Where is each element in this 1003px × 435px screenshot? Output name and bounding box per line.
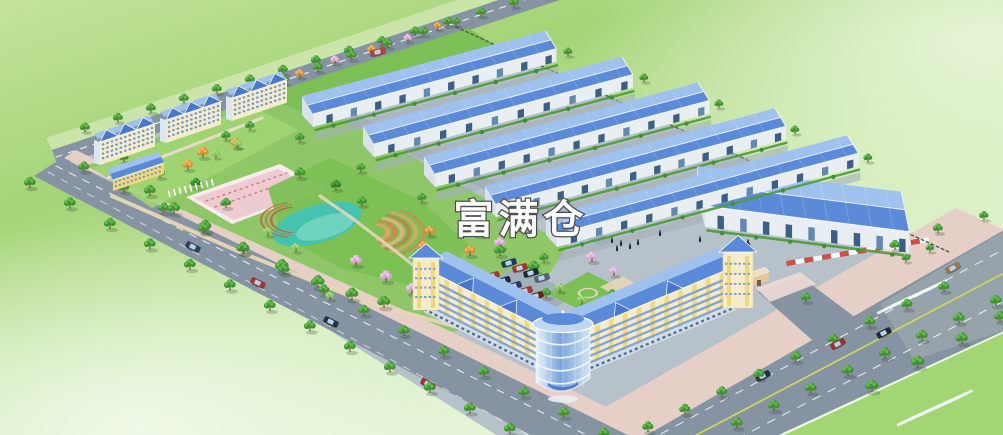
tree-shadow [480, 376, 491, 380]
loading-door [630, 171, 636, 181]
person-head [629, 243, 631, 245]
tree-canopy-highlight [441, 346, 444, 349]
tree-canopy-highlight [589, 251, 592, 254]
tree-canopy-highlight [805, 385, 808, 388]
loading-door [786, 224, 792, 238]
tree-canopy-highlight [380, 273, 384, 277]
tree-shadow [247, 129, 257, 133]
loading-door [740, 218, 746, 232]
tree-shadow [293, 251, 303, 255]
tree-canopy-highlight [359, 196, 362, 199]
tree-shadow [644, 431, 655, 435]
tree-canopy-highlight [519, 389, 522, 392]
loading-door [797, 173, 803, 183]
person-body [616, 247, 618, 252]
tree-shadow [541, 261, 551, 265]
loading-door [772, 180, 778, 190]
tree-shadow [146, 248, 158, 252]
tree-canopy-highlight [918, 359, 922, 363]
tree-shadow [560, 417, 571, 421]
loading-door [440, 130, 446, 140]
tree-canopy-highlight [188, 162, 191, 165]
tree-canopy-highlight [148, 103, 151, 106]
tree-shadow [185, 169, 196, 173]
tree-canopy-highlight [404, 36, 406, 38]
tree-shadow [844, 375, 856, 379]
loading-door [518, 109, 524, 119]
person-body [659, 232, 661, 237]
tree-canopy-highlight [868, 155, 870, 157]
tree-shadow [385, 47, 395, 51]
loading-door [678, 158, 684, 168]
tree-canopy-highlight [204, 225, 207, 228]
tree-canopy-highlight [267, 300, 271, 304]
tree-canopy-highlight [81, 161, 84, 164]
tree-canopy-highlight [476, 9, 479, 12]
tree-canopy-highlight [234, 142, 236, 144]
tree-canopy-highlight [300, 71, 303, 74]
tree-canopy-highlight [356, 165, 359, 168]
office-tower [409, 244, 443, 310]
tree-canopy-highlight [494, 248, 497, 251]
tree-shadow [297, 141, 307, 145]
loading-door [474, 167, 480, 177]
tree-shadow [866, 326, 877, 330]
tree-shadow [958, 343, 971, 348]
tree-canopy-highlight [231, 140, 234, 143]
loading-door [698, 107, 704, 117]
tree-canopy-highlight [791, 354, 794, 357]
tree-canopy-highlight [184, 262, 187, 265]
loading-door [375, 101, 381, 111]
tree-canopy-highlight [349, 288, 353, 292]
tree-canopy-highlight [790, 127, 793, 130]
tree-canopy-highlight [212, 152, 214, 154]
tree-canopy-highlight [801, 295, 804, 298]
tree-canopy-highlight [197, 150, 200, 153]
tree-shadow [66, 207, 78, 211]
end-wall [94, 140, 100, 165]
tree-canopy-highlight [639, 75, 642, 78]
tree-shadow [419, 201, 429, 205]
bush [720, 231, 724, 235]
tree-canopy-highlight [962, 335, 965, 338]
tree-canopy-highlight [644, 75, 646, 77]
tree-shadow [981, 219, 991, 223]
tree-canopy-highlight [212, 86, 215, 89]
tree-canopy-highlight [313, 65, 316, 68]
bush [480, 130, 484, 134]
tree-canopy-highlight [811, 385, 814, 388]
tree-shadow [642, 81, 651, 84]
tree-canopy-highlight [30, 179, 33, 182]
tree-canopy-highlight [298, 133, 301, 136]
tree-canopy-highlight [223, 198, 226, 201]
tree-canopy-highlight [279, 266, 282, 269]
tree-canopy-highlight [879, 350, 882, 353]
tree-canopy-highlight [421, 241, 425, 245]
tree-canopy-highlight [944, 284, 947, 287]
tree-canopy-highlight [104, 221, 107, 224]
tree-canopy-highlight [418, 244, 421, 247]
person [699, 236, 701, 242]
tree-canopy-highlight [806, 295, 809, 298]
tree-canopy-highlight [916, 333, 919, 336]
tree-canopy-highlight [895, 242, 898, 245]
tree-canopy-highlight [734, 417, 738, 421]
tree-canopy-highlight [113, 115, 116, 118]
gatehouse-door [757, 280, 761, 286]
tree-canopy-highlight [484, 369, 487, 372]
bush [523, 118, 527, 122]
tree-canopy-highlight [247, 74, 250, 77]
tree-canopy-highlight [146, 105, 149, 108]
tree-canopy-highlight [448, 19, 451, 22]
bush [453, 91, 457, 95]
tree-canopy-highlight [470, 248, 473, 251]
loading-door [854, 233, 860, 247]
tree-canopy-highlight [24, 180, 27, 183]
tree-canopy-highlight [335, 57, 337, 59]
loading-door [499, 160, 505, 170]
tree-canopy-highlight [580, 295, 583, 298]
tree-shadow [82, 131, 92, 135]
tree-canopy-highlight [344, 48, 347, 51]
tree-canopy-highlight [315, 276, 319, 280]
tree-canopy-highlight [456, 19, 458, 21]
tree-canopy-highlight [315, 62, 318, 65]
loading-door [399, 94, 405, 104]
tree-canopy-highlight [609, 269, 612, 272]
tree-shadow [792, 361, 803, 365]
tree-canopy-highlight [110, 220, 113, 223]
tree-canopy-highlight [481, 9, 484, 12]
loading-door [831, 230, 837, 244]
end-wall [160, 118, 166, 143]
tree-canopy-highlight [803, 292, 806, 295]
tree-shadow [266, 310, 278, 314]
tree-canopy-highlight [444, 348, 447, 351]
tree-canopy-highlight [717, 99, 720, 102]
tree-shadow [315, 71, 325, 75]
loading-door [466, 123, 472, 133]
tree-canopy-highlight [933, 226, 936, 229]
tree-shadow [333, 63, 342, 66]
tree-canopy-highlight [250, 77, 253, 80]
tree-canopy-highlight [304, 323, 307, 326]
loading-door [544, 102, 550, 112]
tree-canopy-highlight [555, 285, 558, 288]
tree-canopy-highlight [359, 307, 362, 310]
tree-shadow [199, 157, 211, 161]
tree-canopy-highlight [865, 319, 868, 322]
tree-canopy-highlight [361, 305, 364, 308]
tree-canopy-highlight [245, 123, 248, 126]
bush [437, 141, 441, 145]
tree-canopy-highlight [737, 420, 740, 423]
tree-canopy-highlight [645, 421, 648, 424]
tree-canopy-highlight [774, 402, 777, 405]
tree-canopy-highlight [294, 243, 297, 246]
bush [547, 158, 551, 162]
bush [630, 229, 634, 233]
tree-canopy-highlight [353, 255, 357, 259]
tree-shadow [445, 26, 455, 30]
person [616, 245, 618, 251]
tree-canopy-highlight [250, 123, 253, 126]
tree-shadow [918, 340, 930, 344]
tree-canopy-highlight [922, 332, 925, 335]
loading-door [388, 143, 394, 153]
tree-canopy-highlight [796, 354, 799, 357]
bush [663, 173, 667, 177]
tree-canopy-highlight [425, 228, 428, 231]
tree-canopy-highlight [959, 332, 963, 336]
tree-canopy-highlight [568, 49, 570, 51]
tree-canopy-highlight [361, 165, 364, 168]
bush [890, 252, 894, 256]
bush [781, 188, 785, 192]
tree-canopy-highlight [227, 279, 231, 283]
tree-shadow [346, 351, 358, 355]
tree-canopy-highlight [544, 255, 547, 258]
tree-canopy-highlight [438, 24, 440, 26]
bush [759, 148, 763, 152]
tree-canopy-highlight [439, 348, 442, 351]
tree-canopy-highlight [867, 316, 870, 319]
tree-canopy-highlight [409, 283, 413, 287]
tree-canopy-highlight [399, 328, 402, 331]
tree-canopy-highlight [324, 287, 327, 290]
tree-shadow [496, 255, 508, 259]
tree-canopy-highlight [481, 366, 484, 369]
tree-canopy-highlight [67, 197, 71, 201]
tree-shadow [466, 255, 477, 259]
tree-canopy-highlight [430, 384, 433, 387]
tree-canopy-highlight [424, 385, 427, 388]
tree-canopy-highlight [325, 293, 328, 296]
tree-shadow [238, 253, 251, 258]
tree-canopy-highlight [238, 142, 240, 144]
loading-door [545, 55, 551, 65]
tree-canopy-highlight [381, 296, 385, 300]
tree-canopy-highlight [226, 200, 229, 203]
tree-canopy-highlight [648, 424, 651, 427]
person-body [699, 238, 701, 243]
tree-shadow [148, 112, 158, 116]
tree-canopy-highlight [347, 341, 351, 345]
tree-shadow [904, 261, 912, 264]
tree-canopy-highlight [768, 403, 771, 406]
tree-shadow [186, 269, 198, 273]
tree-canopy-highlight [892, 240, 895, 243]
tree-shadow [412, 35, 422, 39]
tree-canopy-highlight [70, 200, 73, 203]
bush [393, 153, 397, 157]
tree-shadow [280, 273, 291, 277]
tree-shadow [157, 177, 168, 181]
tree-shadow [928, 251, 936, 254]
tree-canopy-highlight [311, 57, 314, 60]
tree-canopy-highlight [268, 229, 271, 232]
tree-shadow [681, 413, 692, 417]
tree-canopy-highlight [795, 127, 797, 129]
tree-canopy-highlight [993, 295, 997, 299]
tree-canopy-highlight [524, 389, 527, 392]
bush [680, 215, 684, 219]
tree-canopy-highlight [419, 29, 422, 32]
tree-canopy-highlight [390, 364, 393, 367]
tree-canopy-highlight [336, 182, 339, 185]
tree-canopy-highlight [406, 34, 409, 37]
loading-door [751, 139, 757, 149]
tree-shadow [200, 232, 211, 236]
tree-shadow [755, 378, 766, 382]
loading-door [326, 114, 332, 124]
tree-canopy-highlight [226, 133, 229, 136]
tree-canopy-highlight [187, 259, 191, 263]
tree-shadow [421, 35, 431, 39]
tree-canopy-highlight [185, 160, 188, 163]
tree-canopy-highlight [719, 101, 721, 103]
tree-canopy-highlight [321, 284, 324, 287]
tree-canopy-highlight [845, 365, 849, 369]
bush [456, 183, 460, 187]
tree-canopy-highlight [385, 38, 388, 41]
tree-canopy-highlight [902, 256, 904, 258]
tree-canopy-highlight [604, 430, 607, 433]
bush [609, 95, 613, 99]
tree-canopy-highlight [872, 383, 876, 387]
loading-door [747, 186, 753, 196]
tree-canopy-highlight [370, 45, 373, 48]
tree-canopy-highlight [313, 55, 316, 58]
tree-canopy-highlight [183, 162, 186, 165]
tree-canopy-highlight [510, 425, 513, 428]
tree-canopy-highlight [318, 278, 322, 282]
person-head [611, 237, 613, 239]
tree-canopy-highlight [563, 49, 566, 52]
tree-canopy-highlight [367, 47, 370, 50]
tree-canopy-highlight [217, 86, 220, 89]
finial [561, 310, 564, 313]
bush [754, 235, 758, 239]
bush [684, 121, 688, 125]
tree-canopy-highlight [756, 369, 759, 372]
tree-canopy-highlight [959, 315, 962, 318]
tree-canopy-highlight [118, 115, 121, 118]
tree-shadow [866, 161, 875, 164]
tree-canopy-highlight [990, 298, 993, 301]
tree-canopy-highlight [84, 164, 87, 167]
tree-canopy-highlight [534, 263, 537, 266]
tree-canopy-highlight [434, 24, 436, 26]
tree-canopy-highlight [994, 314, 997, 317]
tree-canopy-highlight [427, 382, 431, 386]
person-body [620, 242, 622, 247]
tree-canopy-highlight [291, 245, 294, 248]
tree-canopy-highlight [147, 185, 151, 189]
tree-canopy-highlight [404, 328, 407, 331]
tree-shadow [611, 275, 621, 279]
tree-canopy-highlight [559, 410, 562, 413]
loading-door [722, 193, 728, 203]
tree-canopy-highlight [560, 285, 563, 288]
person [659, 230, 661, 236]
tree-shadow [935, 232, 945, 236]
tree-canopy-highlight [357, 199, 360, 202]
tree-canopy-highlight [372, 47, 375, 50]
tree-canopy-highlight [147, 238, 151, 242]
loading-door [727, 145, 733, 155]
tree-canopy-highlight [346, 46, 349, 49]
tree-canopy-highlight [144, 188, 147, 191]
tree-canopy-highlight [507, 423, 511, 427]
tree-canopy-highlight [298, 69, 301, 72]
tree-canopy-highlight [682, 404, 685, 407]
tree-canopy-highlight [196, 180, 199, 183]
bush [493, 80, 497, 84]
tree-shadow [436, 29, 444, 32]
tree-canopy-highlight [531, 261, 535, 265]
loading-door [424, 88, 430, 98]
bush [331, 123, 335, 127]
tree-canopy-highlight [364, 307, 367, 310]
tree-canopy-highlight [592, 254, 595, 257]
tree-canopy-highlight [479, 369, 482, 372]
tree-shadow [358, 171, 368, 175]
person [611, 237, 613, 243]
loading-door [696, 200, 702, 210]
tree-canopy-highlight [890, 242, 893, 245]
tree-canopy-highlight [80, 125, 83, 128]
loading-door [595, 88, 601, 98]
loading-door [702, 152, 708, 162]
tree-canopy-highlight [64, 200, 67, 203]
loading-door [847, 159, 853, 169]
tree-canopy-highlight [328, 291, 331, 294]
tree-canopy-highlight [928, 244, 931, 247]
tree-canopy-highlight [561, 407, 564, 410]
tree-canopy-highlight [383, 41, 386, 44]
tree-canopy-highlight [221, 133, 224, 136]
tree-canopy-highlight [982, 211, 985, 214]
loading-door [606, 178, 612, 188]
tree-canopy-highlight [350, 258, 353, 261]
tree-canopy-highlight [828, 336, 831, 339]
bush [534, 69, 538, 73]
bush [731, 202, 735, 206]
loading-door [654, 165, 660, 175]
tree-canopy-highlight [245, 77, 248, 80]
tree-canopy-highlight [464, 405, 467, 408]
tree-canopy-highlight [284, 266, 287, 269]
loading-door [621, 81, 627, 91]
tree-canopy-highlight [415, 29, 418, 32]
tree-canopy-highlight [930, 246, 932, 248]
tree-canopy-highlight [680, 406, 683, 409]
tree-canopy-highlight [379, 36, 382, 39]
tree-shadow [347, 299, 360, 304]
loading-door [521, 61, 527, 71]
tree-canopy-highlight [904, 254, 907, 257]
tree-canopy-highlight [79, 164, 82, 167]
tree-canopy-highlight [996, 297, 999, 300]
tree-canopy-highlight [912, 359, 916, 363]
tree-canopy-highlight [443, 19, 446, 22]
tree-canopy-highlight [509, 0, 512, 3]
tree-canopy-highlight [331, 182, 334, 185]
